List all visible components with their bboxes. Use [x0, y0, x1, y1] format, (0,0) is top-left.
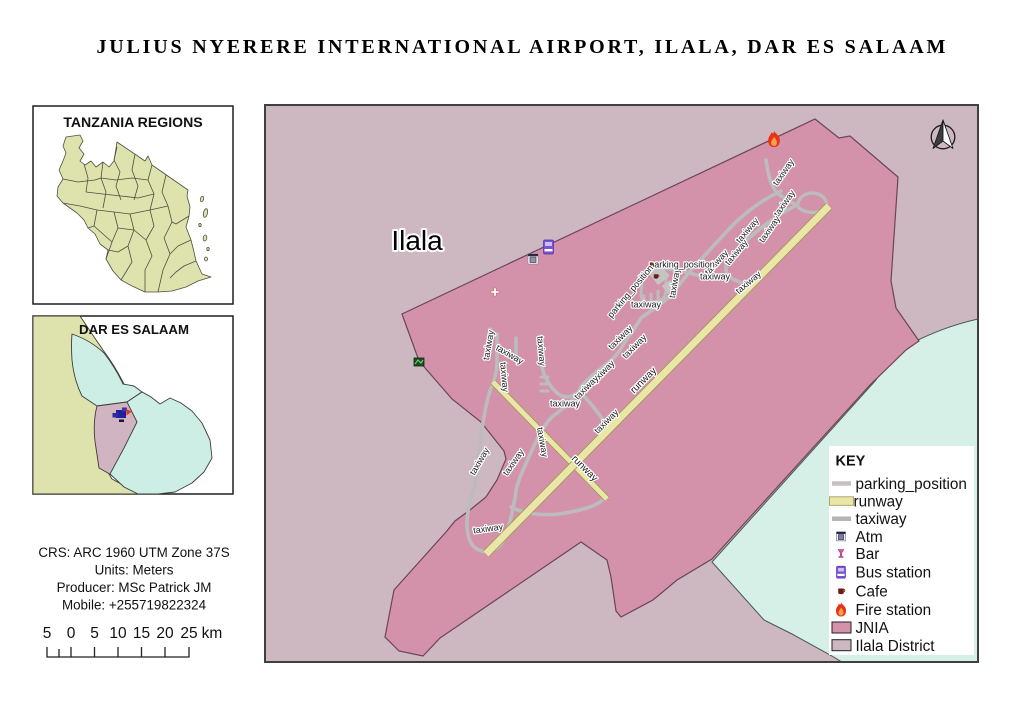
svg-text:CRS: ARC 1960 UTM Zone 37S: CRS: ARC 1960 UTM Zone 37S [38, 545, 229, 560]
svg-text:runway: runway [854, 494, 904, 511]
svg-text:Bar: Bar [856, 546, 880, 563]
svg-text:Ilala: Ilala [391, 225, 443, 256]
svg-text:10: 10 [109, 625, 127, 642]
svg-text:Fire station: Fire station [856, 602, 932, 619]
svg-text:20: 20 [156, 625, 174, 642]
svg-text:JNIA: JNIA [856, 620, 890, 637]
svg-text:taxiway: taxiway [631, 300, 662, 310]
svg-text:DAR ES SALAAM: DAR ES SALAAM [79, 322, 189, 337]
svg-text:taxiway: taxiway [550, 399, 581, 409]
svg-text:Units: Meters: Units: Meters [95, 563, 174, 578]
svg-text:5: 5 [43, 625, 52, 642]
svg-text:5: 5 [90, 625, 99, 642]
svg-text:15: 15 [133, 625, 150, 642]
svg-text:KEY: KEY [836, 454, 866, 470]
svg-text:parking_position: parking_position [856, 476, 967, 493]
svg-text:taxiway: taxiway [856, 511, 907, 528]
svg-text:Atm: Atm [856, 529, 883, 546]
svg-text:Producer: MSc Patrick JM: Producer: MSc Patrick JM [57, 580, 212, 595]
svg-text:TANZANIA REGIONS: TANZANIA REGIONS [63, 114, 202, 130]
svg-text:0: 0 [67, 625, 76, 642]
svg-text:25: 25 [180, 625, 197, 642]
svg-text:Bus station: Bus station [856, 565, 932, 582]
svg-text:taxiway: taxiway [700, 272, 731, 282]
svg-text:Ilala District: Ilala District [856, 638, 936, 655]
svg-text:parking_position: parking_position [649, 260, 715, 270]
svg-text:Mobile: +255719822324: Mobile: +255719822324 [62, 598, 207, 613]
svg-text:JULIUS NYERERE INTERNATIONAL A: JULIUS NYERERE INTERNATIONAL AIRPORT, IL… [97, 36, 949, 58]
svg-text:km: km [202, 625, 223, 642]
svg-text:Cafe: Cafe [856, 583, 888, 600]
